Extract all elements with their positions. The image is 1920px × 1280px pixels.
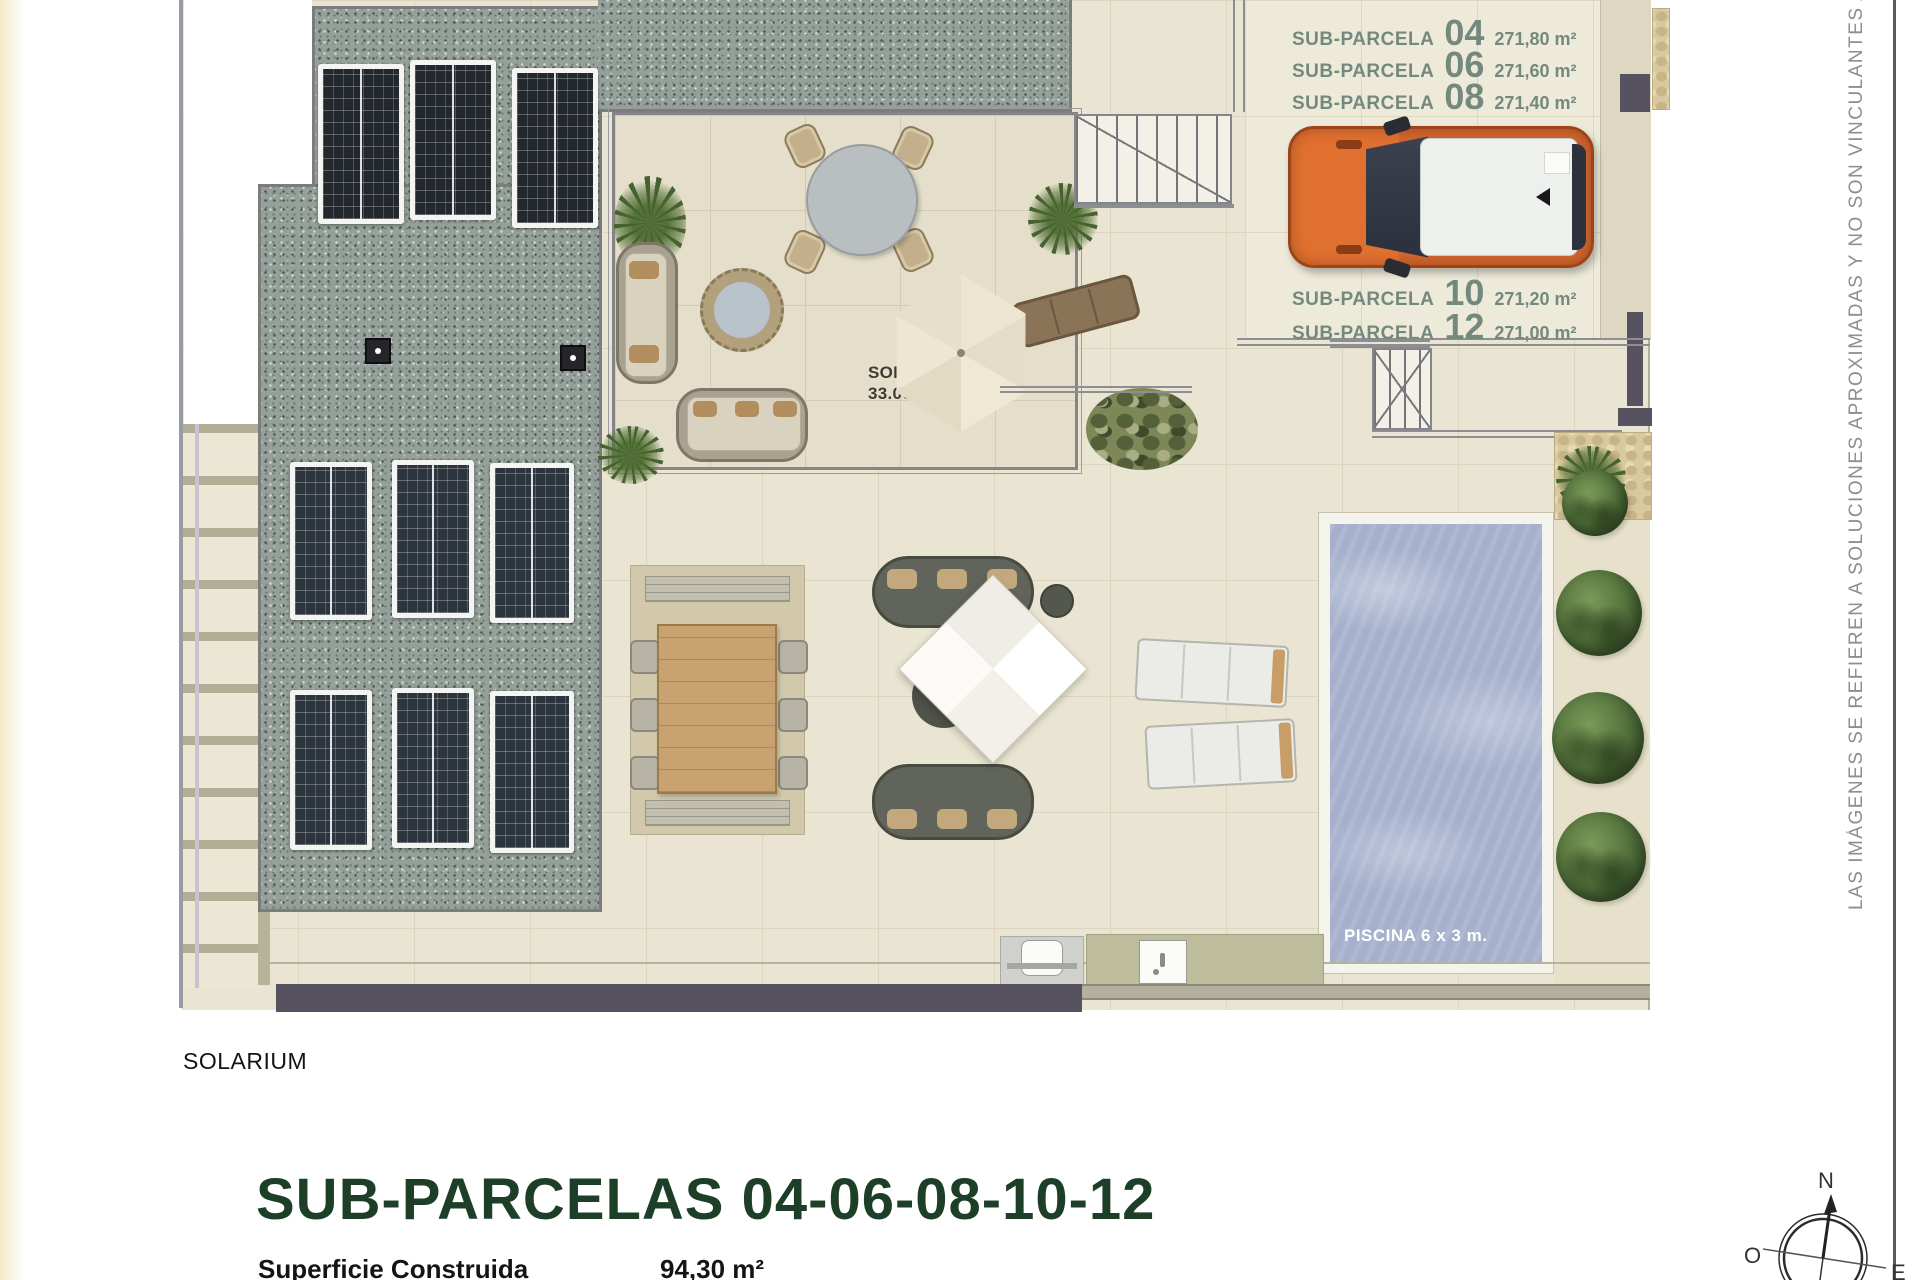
floorplan-page: SOLARIUM 33.00 m² SUB-PARCELA 04 271,80 … xyxy=(0,0,1920,1280)
bench xyxy=(645,576,790,602)
compass-east-label: E xyxy=(1891,1260,1906,1280)
chair-icon xyxy=(630,756,660,790)
bench xyxy=(645,800,790,826)
side-disclaimer: LAS IMÁGENES SE REFIEREN A SOLUCIONES AP… xyxy=(1846,0,1886,910)
shower-tray xyxy=(1139,940,1187,984)
tree-icon xyxy=(1552,692,1644,784)
sheet-border-line xyxy=(1893,0,1896,1280)
drain-dot xyxy=(1153,969,1159,975)
bottom-wall xyxy=(276,984,1082,1012)
pool-label: PISCINA 6 x 3 m. xyxy=(1344,926,1487,946)
walkway-line xyxy=(260,962,1650,964)
solar-panel xyxy=(490,691,574,853)
sun-lounger xyxy=(1134,638,1289,708)
blank-left xyxy=(184,186,260,424)
solar-panel xyxy=(290,690,372,850)
round-table xyxy=(806,144,918,256)
shower-bench xyxy=(1007,963,1077,969)
page-edge-gradient xyxy=(0,0,26,1280)
side-table xyxy=(1040,584,1074,618)
stone-border xyxy=(1652,8,1670,110)
staircase xyxy=(1074,114,1232,204)
gravel-roof-strip xyxy=(598,0,1072,112)
chair-icon xyxy=(778,756,808,790)
small-staircase xyxy=(1372,348,1432,430)
subparcel-area: 271,00 m² xyxy=(1494,323,1576,344)
solar-panel xyxy=(392,688,474,848)
floor-name-label: SOLARIUM xyxy=(183,1048,307,1075)
shower-head xyxy=(1021,940,1063,976)
surface-value: 94,30 m² xyxy=(660,1254,764,1280)
service-strip xyxy=(1086,934,1324,986)
coffee-table-top xyxy=(714,282,770,338)
solar-panel xyxy=(490,463,574,623)
page-title: SUB-PARCELAS 04-06-08-10-12 xyxy=(256,1166,1155,1233)
sun-lounger xyxy=(1144,718,1297,790)
car-windshield xyxy=(1366,134,1428,260)
parking-divider-wall xyxy=(1233,0,1245,112)
subparcel-row: SUB-PARCELA 08 271,40 m² xyxy=(1292,76,1576,118)
chair-icon xyxy=(778,640,808,674)
compass-north-label: N xyxy=(1818,1168,1834,1193)
sofa xyxy=(872,764,1034,840)
wall-segment xyxy=(1618,408,1652,426)
shower-pad xyxy=(1000,936,1084,988)
hood-vent xyxy=(1336,245,1362,254)
solar-panel xyxy=(512,68,598,228)
wall-segment xyxy=(1330,340,1430,348)
solar-panel xyxy=(410,60,496,220)
subparcel-label: SUB-PARCELA xyxy=(1292,93,1434,115)
tree-icon xyxy=(1556,812,1646,902)
vent-dot xyxy=(570,355,576,361)
coffee-table xyxy=(700,268,784,352)
walkway-rail-line xyxy=(195,424,199,988)
subparcel-number: 12 xyxy=(1444,306,1484,348)
left-walkway xyxy=(183,424,259,988)
solar-panel xyxy=(318,64,404,224)
car-rear-window xyxy=(1572,144,1586,250)
car-antenna xyxy=(1536,188,1550,206)
wall-segment xyxy=(1627,312,1643,406)
blank-top-left xyxy=(184,0,312,186)
car-top-view xyxy=(1288,126,1594,268)
sofa xyxy=(676,388,808,462)
wall-segment xyxy=(1620,74,1650,112)
surface-label: Superficie Construida xyxy=(258,1254,528,1280)
bush-icon xyxy=(1086,388,1198,470)
chair-icon xyxy=(630,640,660,674)
tree-icon xyxy=(1556,570,1642,656)
plant-icon xyxy=(598,426,664,484)
compass-rose: N O E xyxy=(1738,1158,1908,1280)
side-path xyxy=(1600,0,1651,340)
stair-wall xyxy=(1074,204,1234,208)
compass-west-label: O xyxy=(1744,1243,1761,1268)
terrace-wall xyxy=(1000,386,1192,393)
subparcel-number: 08 xyxy=(1444,76,1484,118)
sofa xyxy=(616,242,678,384)
subparcel-area: 271,40 m² xyxy=(1494,93,1576,114)
chair-icon xyxy=(778,698,808,732)
solar-panel xyxy=(392,460,474,618)
faucet xyxy=(1160,953,1165,967)
tree-icon xyxy=(1562,470,1628,536)
roof-vent-box xyxy=(560,345,586,371)
chair-icon xyxy=(630,698,660,732)
roof-vent-box xyxy=(365,338,391,364)
bottom-wall-light xyxy=(1082,984,1650,1000)
vent-dot xyxy=(375,348,381,354)
solar-panel xyxy=(290,462,372,620)
dining-table xyxy=(657,624,777,794)
pool: PISCINA 6 x 3 m. xyxy=(1330,524,1542,962)
hood-vent xyxy=(1336,140,1362,149)
car-roof-detail xyxy=(1544,152,1570,174)
